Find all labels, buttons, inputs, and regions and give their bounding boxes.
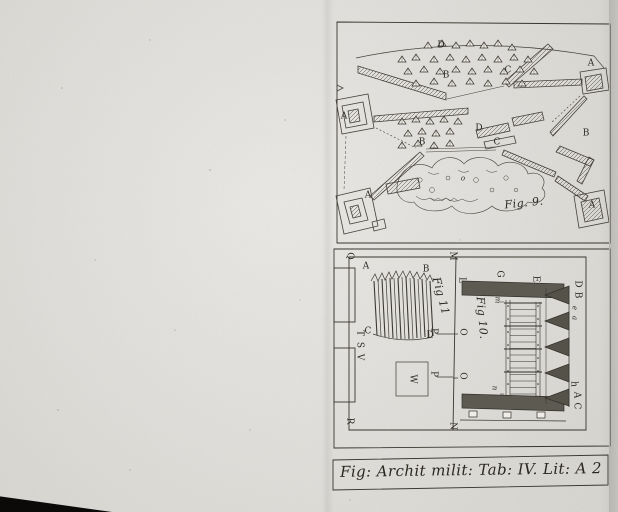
fig10-label-m-mid: m [494, 297, 501, 304]
fig11-label-n: N [448, 422, 457, 430]
fig9-label-a-redoubt-left: A [341, 113, 348, 122]
fig10-label-e-top: E [531, 276, 540, 283]
fig11-label-q: Q [345, 252, 354, 259]
fig10-label-l-top: L [457, 277, 466, 283]
fig11-label-o-upper: O [458, 328, 467, 335]
fig11-label-m: M [448, 251, 457, 260]
fig10-label-a-small: a [571, 316, 578, 320]
fig10-title: Fig 10. [475, 296, 490, 339]
fig9-label-a-redoubt-right: A [588, 60, 595, 69]
fig10-label-b-right: B [573, 292, 582, 299]
fig11-label-s: S [355, 342, 364, 348]
fig9-label-d-camp-mid: D [475, 125, 482, 134]
fig10-label-e-small: e [571, 306, 578, 310]
plate-caption: Fig: Archit milit: Tab: IV. Lit: A 2 [338, 459, 604, 481]
fig9-label-c-upper-right: C [505, 67, 512, 76]
fig11-label-c: C [365, 328, 372, 337]
fig11-label-v: V [355, 354, 364, 361]
fig9-label-b-right: B [583, 130, 590, 139]
fig10-label-a-right: A [572, 392, 581, 399]
fig9-label-b-wall-mid: B [419, 139, 426, 148]
engraving-artwork [0, 0, 618, 512]
fig10-label-n-mid: n [491, 386, 498, 391]
fig9-label-a-redoubt-bottom-right: A [589, 202, 596, 211]
fig10-label-g-top: G [495, 270, 504, 277]
fig10-label-h-right: h [569, 381, 578, 387]
fig11-label-t: T [355, 330, 364, 336]
fig9-label-o-mound: o [461, 176, 465, 183]
fig11-label-o-lower: O [458, 372, 467, 379]
page-gutter-fold [322, 0, 334, 512]
fig11-label-a: A [363, 263, 370, 272]
fig10-label-c-right: C [572, 403, 581, 410]
fig11-label-p-upper: P [429, 328, 438, 334]
fig9-label-a-redoubt-bottom-left: A [365, 192, 372, 201]
fig11-label-w: W [408, 374, 417, 383]
fig11-label-p-lower: P [429, 371, 438, 377]
fig11-label-b: B [423, 266, 430, 275]
page-edge-shadow [609, 0, 618, 512]
scanned-book-page: D B C A A B D C B A A o Fig. 9. Q M R N … [0, 0, 618, 512]
fig9-label-c-wall-mid: C [494, 139, 501, 148]
fig9-label-b-camp-top: B [443, 72, 450, 81]
fig9-label-d-camp-top: D [437, 42, 444, 51]
fig11-label-r: R [345, 418, 354, 425]
fig10-label-d-right: D [573, 280, 582, 287]
